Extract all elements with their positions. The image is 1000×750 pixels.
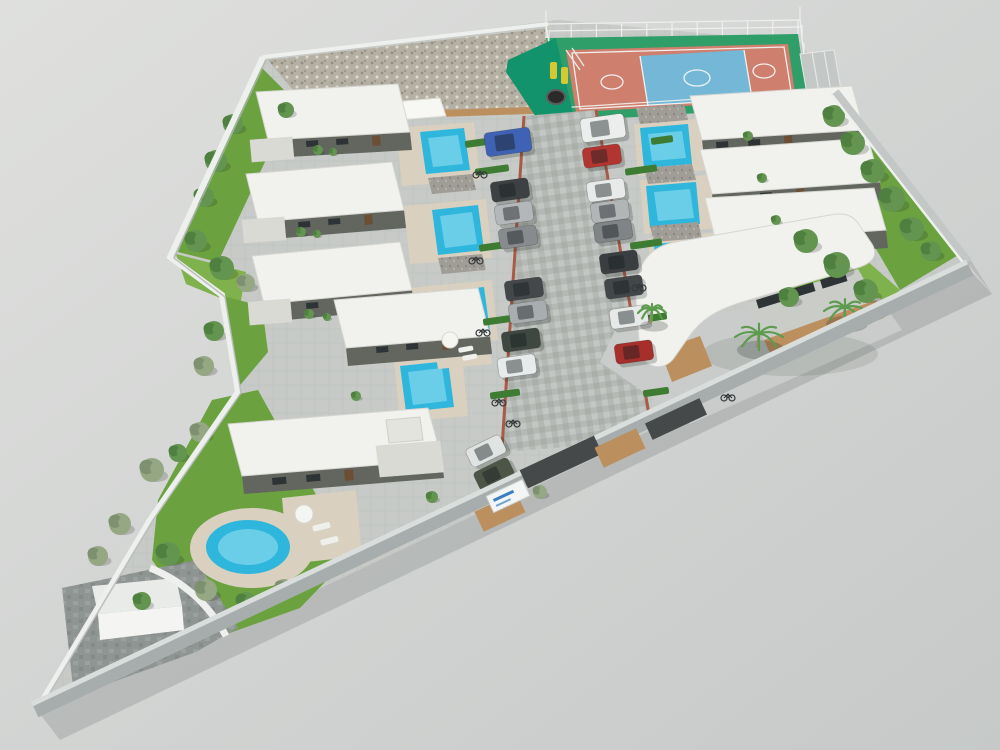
- site-plan-rendering: [0, 0, 1000, 750]
- trampoline: [547, 90, 565, 104]
- play-post: [550, 62, 557, 79]
- play-post: [561, 67, 568, 84]
- roof-skylight: [386, 417, 423, 443]
- rendering-stage: [0, 0, 1000, 750]
- patio-umbrella: [442, 332, 458, 348]
- patio-umbrella: [295, 505, 313, 523]
